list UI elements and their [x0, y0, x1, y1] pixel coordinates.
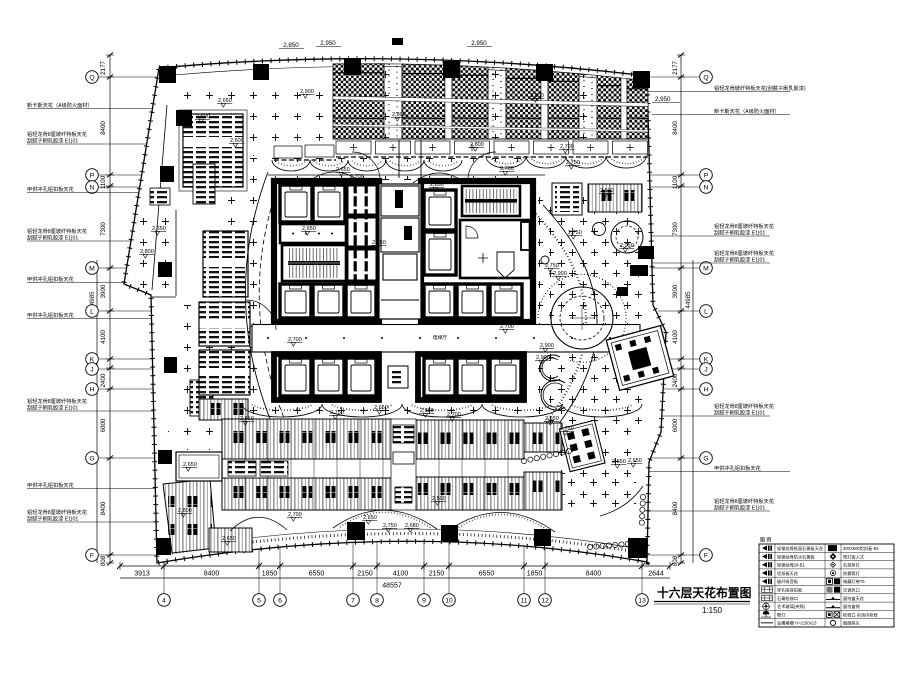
- svg-text:2,650: 2,650: [545, 416, 559, 422]
- svg-text:2,750: 2,750: [566, 160, 580, 166]
- svg-text:Q: Q: [89, 74, 94, 81]
- svg-text:检修口 吊顶内检修: 检修口 吊顶内检修: [843, 611, 878, 618]
- svg-text:9: 9: [422, 597, 426, 604]
- svg-text:4100: 4100: [100, 330, 107, 344]
- svg-text:H: H: [90, 386, 95, 393]
- svg-text:甲供冲孔铝扣板天花: 甲供冲孔铝扣板天花: [714, 464, 761, 472]
- svg-text:2,650: 2,650: [183, 462, 197, 468]
- svg-text:玻纤吸音板: 玻纤吸音板: [777, 578, 799, 585]
- svg-text:石英射灯: 石英射灯: [843, 562, 861, 569]
- svg-text:3913: 3913: [134, 571, 150, 578]
- svg-text:2,800: 2,800: [392, 112, 406, 118]
- svg-text:甲供冲孔铝扣板天花: 甲供冲孔铝扣板天花: [27, 275, 74, 283]
- svg-text:2,700: 2,700: [500, 166, 514, 172]
- svg-text:2,650: 2,650: [152, 226, 166, 232]
- svg-text:2,850: 2,850: [430, 182, 444, 188]
- svg-text:甲供冲孔铝扣板天花: 甲供冲孔铝扣板天花: [27, 311, 74, 319]
- svg-text:2,950: 2,950: [620, 243, 634, 249]
- svg-text:刮腻子刷乳胶漆 E1|01: 刮腻子刷乳胶漆 E1|01: [714, 504, 765, 512]
- svg-text:2,800: 2,800: [140, 249, 154, 255]
- svg-text:窗帘盒天花: 窗帘盒天花: [843, 595, 864, 602]
- svg-text:5: 5: [257, 597, 261, 604]
- svg-text:L: L: [90, 308, 94, 315]
- svg-text:808: 808: [100, 555, 107, 566]
- svg-text:铝轻龙骨8厘玻纤特板天花: 铝轻龙骨8厘玻纤特板天花: [27, 397, 87, 405]
- svg-text:2,950: 2,950: [471, 40, 487, 47]
- svg-text:2,500: 2,500: [600, 188, 614, 194]
- svg-text:轻钢龙骨纸面石膏板天花: 轻钢龙骨纸面石膏板天花: [777, 545, 823, 552]
- svg-text:2,650: 2,650: [222, 536, 236, 542]
- svg-text:2,650: 2,650: [336, 167, 350, 173]
- svg-text:300X600铝扣板-B1: 300X600铝扣板-B1: [843, 545, 880, 552]
- svg-text:M: M: [703, 265, 709, 272]
- svg-text:44985: 44985: [685, 291, 692, 309]
- svg-text:2,700: 2,700: [560, 144, 574, 150]
- svg-text:6000: 6000: [672, 418, 679, 432]
- svg-text:H: H: [704, 386, 709, 393]
- svg-text:6000: 6000: [100, 418, 107, 432]
- svg-text:2,800: 2,800: [178, 508, 192, 514]
- svg-text:电梯厅: 电梯厅: [433, 334, 448, 341]
- svg-text:防雾筒灯: 防雾筒灯: [843, 570, 861, 577]
- svg-text:2150: 2150: [429, 571, 445, 578]
- svg-text:新卡斯天花（A级防火面材）: 新卡斯天花（A级防火面材）: [714, 107, 780, 115]
- svg-text:L: L: [704, 308, 708, 315]
- svg-text:铝轻龙骨8厘玻纤特板天花: 铝轻龙骨8厘玻纤特板天花: [714, 497, 774, 505]
- svg-text:2,680: 2,680: [405, 523, 419, 529]
- svg-text:6550: 6550: [309, 571, 325, 578]
- svg-text:8400: 8400: [100, 121, 107, 135]
- svg-text:6: 6: [278, 597, 282, 604]
- svg-text:4100: 4100: [672, 330, 679, 344]
- svg-text:F: F: [90, 552, 94, 559]
- svg-text:2,650: 2,650: [218, 98, 232, 104]
- svg-text:铝轻龙骨8厘玻纤特板天花: 铝轻龙骨8厘玻纤特板天花: [714, 249, 774, 257]
- svg-text:J: J: [704, 366, 707, 373]
- svg-text:48557: 48557: [382, 583, 402, 590]
- svg-text:2177: 2177: [100, 61, 107, 75]
- svg-text:808: 808: [672, 555, 679, 566]
- svg-text:铝轻龙骨8厘玻纤特板天花: 铝轻龙骨8厘玻纤特板天花: [27, 130, 87, 138]
- svg-text:2,950: 2,950: [320, 40, 336, 47]
- svg-text:铝轻龙骨8厘玻纤特板天花: 铝轻龙骨8厘玻纤特板天花: [714, 402, 774, 410]
- svg-text:刮腻子刷乳胶漆 E1|01: 刮腻子刷乳胶漆 E1|01: [27, 137, 78, 145]
- svg-text:2,750: 2,750: [568, 230, 582, 236]
- svg-text:8: 8: [375, 597, 379, 604]
- svg-text:暗藏灯带T5: 暗藏灯带T5: [843, 578, 865, 585]
- svg-text:2,650: 2,650: [302, 226, 316, 232]
- svg-text:2,650: 2,650: [374, 405, 388, 411]
- svg-text:新卡斯天花（A级防火面材）: 新卡斯天花（A级防火面材）: [27, 101, 93, 109]
- svg-text:铝轻龙骨8厘玻纤特板天花: 铝轻龙骨8厘玻纤特板天花: [714, 222, 774, 230]
- svg-text:2,700: 2,700: [447, 412, 461, 418]
- svg-text:2,700: 2,700: [350, 174, 364, 180]
- svg-text:1850: 1850: [262, 571, 278, 578]
- svg-text:3900: 3900: [100, 284, 107, 298]
- svg-text:窗帘盒侧: 窗帘盒侧: [843, 603, 860, 610]
- svg-text:2,900: 2,900: [540, 343, 554, 349]
- svg-text:筒灯嵌入式: 筒灯嵌入式: [843, 553, 865, 560]
- svg-text:8400: 8400: [586, 571, 602, 578]
- svg-text:2,500: 2,500: [432, 496, 446, 502]
- svg-text:11: 11: [520, 597, 527, 604]
- svg-text:8400: 8400: [672, 121, 679, 135]
- svg-text:7300: 7300: [100, 222, 107, 236]
- svg-text:刮腻子刷乳胶漆 E1|01: 刮腻子刷乳胶漆 E1|01: [27, 404, 78, 412]
- svg-text:Q: Q: [703, 74, 708, 81]
- svg-text:甲供冲孔铝扣板天花: 甲供冲孔铝扣板天花: [27, 185, 74, 193]
- svg-text:2400: 2400: [100, 373, 107, 387]
- svg-text:2,750: 2,750: [383, 523, 397, 529]
- svg-text:2,600: 2,600: [196, 114, 210, 120]
- svg-text:刮腻子刷乳胶漆 E1|01: 刮腻子刷乳胶漆 E1|01: [714, 256, 765, 264]
- svg-text:甲供冲孔铝扣板天花: 甲供冲孔铝扣板天花: [27, 481, 74, 489]
- svg-text:2,800: 2,800: [470, 142, 484, 148]
- svg-text:刮腻子刷乳胶漆 E1|01: 刮腻子刷乳胶漆 E1|01: [27, 234, 78, 242]
- svg-text:8400: 8400: [100, 501, 107, 515]
- svg-text:12: 12: [541, 597, 549, 604]
- svg-text:8400: 8400: [204, 571, 220, 578]
- svg-text:2,800: 2,800: [530, 93, 544, 99]
- svg-text:2177: 2177: [672, 61, 679, 75]
- svg-text:铝轻龙骨8厘玻纤特板天花: 铝轻龙骨8厘玻纤特板天花: [27, 508, 87, 516]
- svg-text:2,700: 2,700: [288, 512, 302, 518]
- svg-text:石膏检修口: 石膏检修口: [777, 595, 798, 602]
- svg-text:4100: 4100: [393, 571, 409, 578]
- svg-text:N: N: [90, 184, 95, 191]
- svg-text:P: P: [704, 172, 709, 179]
- svg-text:穿孔吸音铝板: 穿孔吸音铝板: [777, 586, 803, 593]
- svg-text:2644: 2644: [648, 571, 664, 578]
- svg-text:铝扣板天花: 铝扣板天花: [777, 570, 798, 577]
- svg-text:铝轻龙骨8厘玻纤特板天花: 铝轻龙骨8厘玻纤特板天花: [27, 227, 87, 235]
- svg-text:轻钢龙骨28-B1: 轻钢龙骨28-B1: [777, 562, 806, 569]
- svg-text:2,750: 2,750: [560, 426, 574, 432]
- svg-text:N: N: [704, 184, 709, 191]
- svg-text:1:150: 1:150: [702, 606, 723, 615]
- svg-text:2,750: 2,750: [545, 263, 559, 269]
- svg-text:7300: 7300: [672, 222, 679, 236]
- svg-text:铝轻龙骨玻纤特板天花(刮腻子刷乳胶漆): 铝轻龙骨玻纤特板天花(刮腻子刷乳胶漆): [714, 84, 806, 92]
- svg-text:7: 7: [351, 597, 355, 604]
- svg-text:2,700: 2,700: [288, 337, 302, 343]
- svg-text:2,900: 2,900: [553, 271, 567, 277]
- svg-text:2,680: 2,680: [420, 408, 434, 414]
- svg-text:1850: 1850: [527, 571, 543, 578]
- svg-text:2,650: 2,650: [612, 459, 626, 465]
- svg-text:10: 10: [445, 597, 453, 604]
- svg-text:壁灯: 壁灯: [777, 611, 786, 618]
- svg-text:烟感探头: 烟感探头: [843, 620, 860, 627]
- svg-text:刮腻子刷乳胶漆 E1|01: 刮腻子刷乳胶漆 E1|01: [27, 515, 78, 523]
- svg-text:P: P: [90, 172, 95, 179]
- svg-text:金属格栅 H=2150x13: 金属格栅 H=2150x13: [777, 620, 817, 627]
- svg-text:G: G: [703, 455, 708, 462]
- svg-text:M: M: [89, 265, 95, 272]
- svg-text:2,850: 2,850: [283, 42, 299, 49]
- svg-text:13: 13: [638, 597, 646, 604]
- svg-text:2,700: 2,700: [500, 324, 514, 330]
- svg-text:J: J: [90, 366, 93, 373]
- svg-text:2,750: 2,750: [330, 410, 344, 416]
- svg-text:2,650: 2,650: [240, 416, 254, 422]
- svg-text:F: F: [704, 552, 708, 559]
- svg-text:2,600: 2,600: [230, 138, 244, 144]
- svg-text:轻钢龙骨防水石膏板: 轻钢龙骨防水石膏板: [777, 553, 816, 560]
- svg-text:2,650: 2,650: [628, 458, 642, 464]
- svg-text:2,900: 2,900: [300, 89, 314, 95]
- svg-text:3900: 3900: [672, 284, 679, 298]
- svg-text:艺术玻璃(夹绢): 艺术玻璃(夹绢): [777, 603, 806, 610]
- svg-text:2,900: 2,900: [536, 355, 550, 361]
- svg-text:2150: 2150: [357, 571, 373, 578]
- svg-text:图 例: 图 例: [760, 537, 771, 544]
- svg-text:G: G: [89, 455, 94, 462]
- svg-text:4: 4: [162, 597, 166, 604]
- svg-text:2,650: 2,650: [372, 240, 386, 246]
- svg-text:十六层天花布置图: 十六层天花布置图: [657, 586, 752, 600]
- svg-text:刮腻子刷乳胶漆 E1|01: 刮腻子刷乳胶漆 E1|01: [714, 409, 765, 417]
- svg-text:8400: 8400: [672, 501, 679, 515]
- svg-text:6550: 6550: [479, 571, 495, 578]
- svg-text:2,650: 2,650: [363, 515, 377, 521]
- svg-text:空调风口: 空调风口: [843, 586, 860, 593]
- svg-text:刮腻子刷乳胶漆 E1|01: 刮腻子刷乳胶漆 E1|01: [714, 229, 765, 237]
- svg-text:2,950: 2,950: [655, 96, 671, 103]
